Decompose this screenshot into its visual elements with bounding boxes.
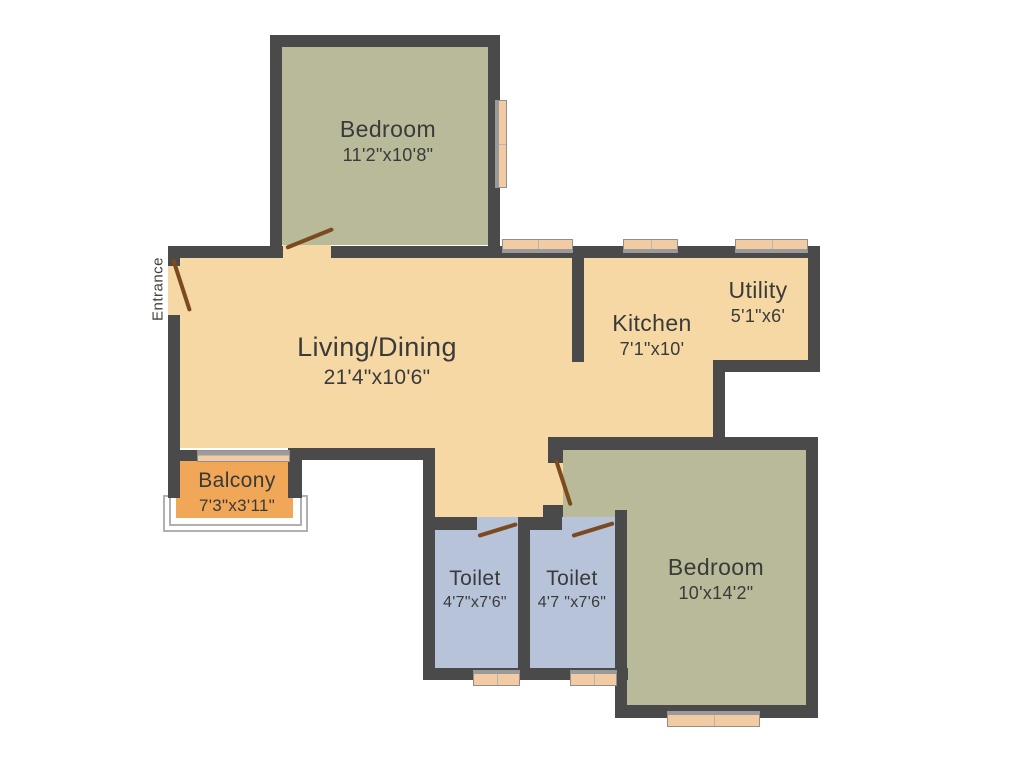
entrance-label: Entrance [150, 257, 167, 321]
room-name: Utility [683, 277, 833, 303]
label-balcony: Balcony 7'3"x3'11" [162, 469, 312, 516]
floor-living-lower [180, 437, 548, 448]
window [502, 239, 573, 253]
label-living-dining: Living/Dining 21'4"x10'6" [252, 332, 502, 390]
wall [518, 517, 562, 530]
room-name: Bedroom [288, 116, 488, 142]
label-bedroom-1: Bedroom 11'2"x10'8" [288, 116, 488, 166]
room-dims: 10'x14'2" [616, 583, 816, 604]
wall [270, 35, 500, 47]
sliding-door [197, 450, 290, 462]
floor-plan: Bedroom 11'2"x10'8" Living/Dining 21'4"x… [0, 0, 1024, 768]
wall [168, 246, 283, 258]
wall [713, 360, 725, 447]
floor-bedroom-2-vestibule [563, 450, 627, 517]
wall [423, 448, 435, 680]
wall [713, 360, 820, 372]
window [495, 100, 507, 188]
window [623, 239, 678, 253]
window [570, 670, 617, 686]
room-dims: 5'1"x6' [683, 306, 833, 327]
room-dims: 7'3"x3'11" [162, 496, 312, 516]
room-dims: 21'4"x10'6" [252, 366, 502, 390]
wall [290, 448, 435, 460]
wall [543, 505, 563, 517]
label-bedroom-2: Bedroom 10'x14'2" [616, 554, 816, 604]
room-name: Living/Dining [252, 332, 502, 363]
wall [423, 517, 477, 530]
room-name: Bedroom [616, 554, 816, 580]
wall [548, 437, 818, 450]
window [667, 711, 760, 727]
window [473, 670, 520, 686]
label-utility: Utility 5'1"x6' [683, 277, 833, 327]
wall [270, 35, 282, 258]
room-dims: 7'1"x10' [577, 339, 727, 360]
wall [168, 315, 180, 460]
floor-corridor [435, 448, 548, 517]
room-name: Balcony [162, 469, 312, 493]
window [735, 239, 808, 253]
wall [180, 450, 197, 461]
room-dims: 11'2"x10'8" [288, 145, 488, 166]
